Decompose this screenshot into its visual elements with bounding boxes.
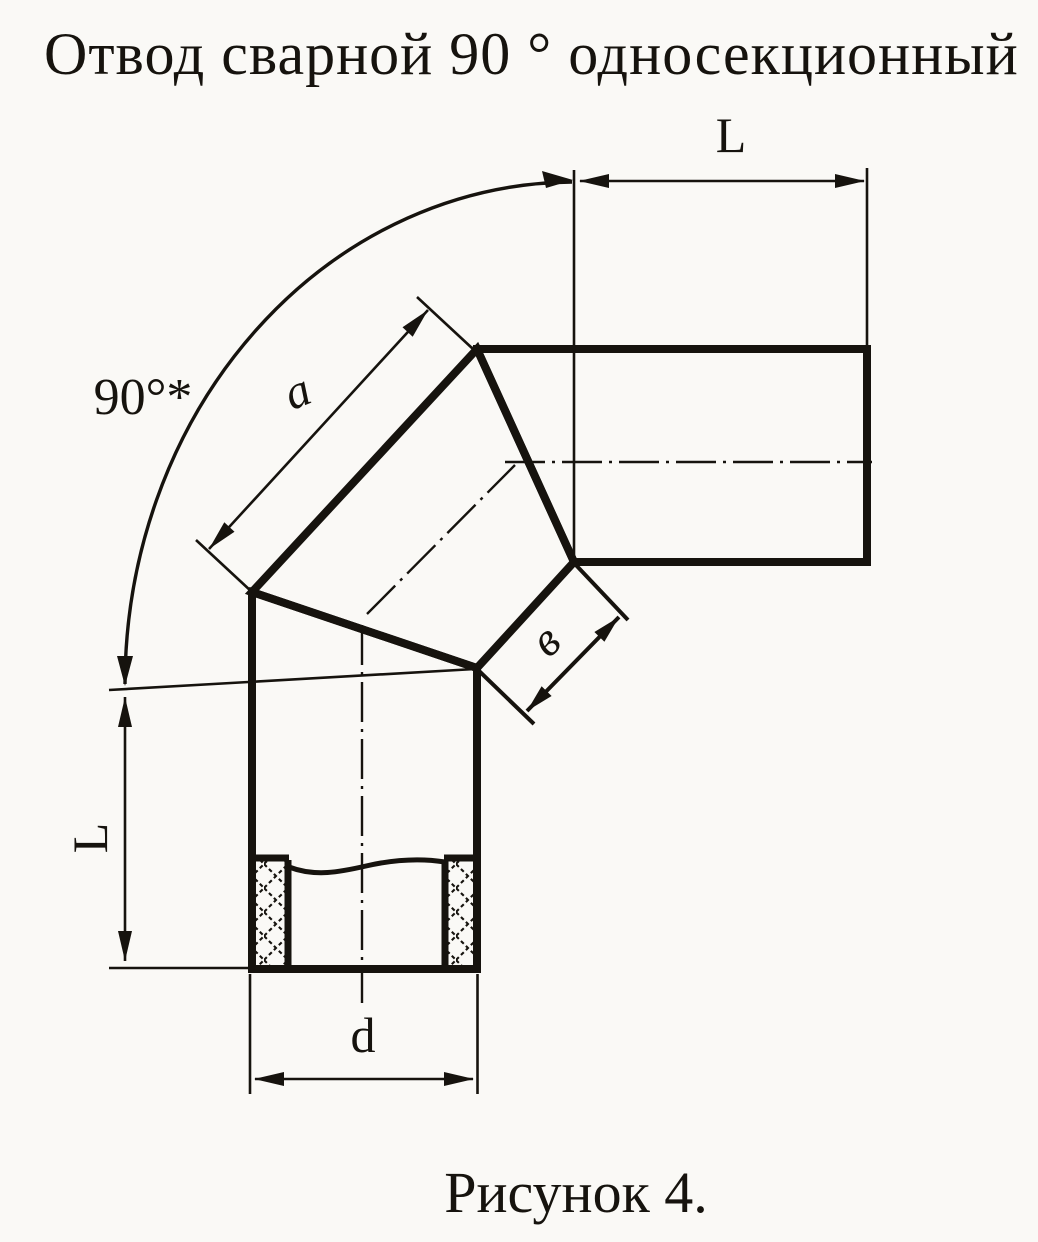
horizontal-pipe-outline (477, 349, 867, 562)
angle-arc-arrow-top (542, 171, 573, 188)
weld-seam-upper (477, 349, 574, 562)
dim-d-arrow-left (254, 1072, 284, 1086)
dim-d: d (250, 974, 478, 1094)
dim-a-label: a (276, 363, 318, 421)
dim-b-extension-upper (574, 563, 628, 620)
elbow-technical-drawing: Отвод сварной 90 ° односекционный Рисуно… (0, 0, 1038, 1242)
dim-l-top-label: L (716, 107, 747, 163)
weld-seam-lower (252, 592, 477, 668)
dim-l-left-label: L (62, 823, 118, 854)
dim-b-extension-lower (477, 669, 534, 724)
dim-a-extension-lower (196, 540, 252, 592)
figure-caption: Рисунок 4. (444, 1160, 708, 1225)
dim-a-extension-upper (417, 297, 473, 349)
dim-l-top-arrow-left (579, 174, 609, 188)
dim-l-left-extension-top (109, 669, 475, 690)
dim-d-label: d (351, 1007, 376, 1063)
socket-hatch-left (253, 860, 286, 967)
angle-arc (125, 182, 572, 684)
socket-hatch-right (446, 860, 476, 967)
angle-dimension: 90°* (94, 171, 573, 686)
dim-b-label: в (520, 614, 571, 667)
dim-l-left-arrow-bottom (118, 931, 132, 961)
drawing-sheet: Отвод сварной 90 ° односекционный Рисуно… (0, 0, 1038, 1242)
centerline-gore-diagonal (367, 465, 515, 614)
dim-l-left-arrow-top (118, 697, 132, 727)
angle-arc-arrow-bottom (117, 656, 133, 686)
socket-break-line (289, 860, 445, 873)
drawing-title: Отвод сварной 90 ° односекционный (44, 21, 1019, 87)
socket-detail (252, 858, 478, 967)
centerlines (362, 462, 872, 1003)
dim-l-top-arrow-right (835, 174, 865, 188)
dim-l-top: L (574, 107, 867, 562)
dim-d-arrow-right (444, 1072, 474, 1086)
angle-label: 90°* (94, 369, 193, 426)
